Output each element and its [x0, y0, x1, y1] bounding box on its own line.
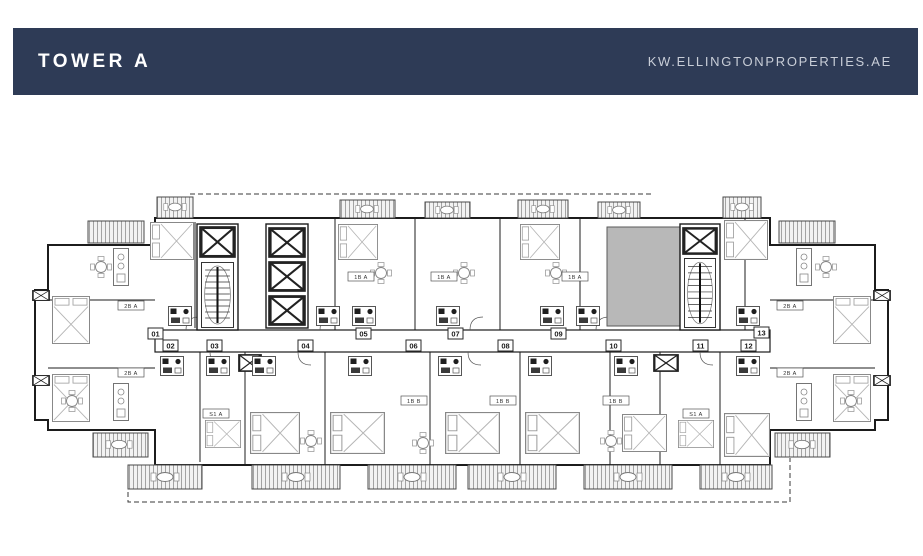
elevator-shaft	[270, 263, 304, 291]
balcony-table	[436, 206, 458, 214]
bed	[834, 296, 871, 343]
balcony-table	[498, 473, 526, 482]
unit-type-tag: 1B B	[490, 396, 516, 405]
bed	[678, 420, 713, 447]
bathroom-pod	[253, 357, 276, 376]
balcony-table	[789, 440, 815, 448]
type-tag-label: 2B A	[124, 371, 138, 377]
balcony-table	[164, 203, 186, 211]
bathroom-pod	[437, 307, 460, 326]
unit-number-tag: 12	[741, 340, 756, 351]
type-tag-label: 2B A	[783, 304, 797, 310]
facade-planter	[33, 291, 49, 301]
service-core-block	[607, 227, 680, 326]
unit-type-tag: 1B B	[401, 396, 427, 405]
unit-tag-label: 12	[744, 342, 752, 351]
unit-type-tag: 2B A	[777, 301, 803, 310]
type-tag-label: 1B A	[437, 275, 451, 281]
balcony-table	[722, 473, 750, 482]
type-tag-label: 1B B	[496, 399, 510, 405]
facade-planter	[874, 291, 890, 301]
elevator-shaft	[270, 297, 304, 325]
facade-planter	[33, 376, 49, 386]
unit-type-tag: 1B A	[562, 272, 588, 281]
unit-type-tag: 2B A	[118, 301, 144, 310]
unit-number-tag: 11	[693, 340, 708, 351]
unit-tag-label: 04	[301, 342, 310, 351]
kitchen-island	[797, 384, 812, 421]
balcony-table	[608, 206, 630, 214]
balcony	[779, 221, 835, 243]
bathroom-pod	[737, 307, 760, 326]
bed	[53, 296, 90, 343]
elevator-shaft	[270, 229, 304, 257]
unit-number-tag: 07	[448, 328, 463, 339]
stairs	[202, 263, 234, 328]
bed	[526, 413, 580, 454]
bathroom-pod	[529, 357, 552, 376]
bed	[520, 224, 559, 259]
balcony-table	[282, 473, 310, 482]
kitchen-island	[114, 384, 129, 421]
unit-tag-label: 11	[697, 342, 705, 351]
unit-number-tag: 05	[356, 328, 371, 339]
bed	[725, 414, 770, 457]
balcony-table	[356, 205, 378, 213]
unit-tag-label: 09	[554, 330, 562, 339]
bathroom-pod	[353, 307, 376, 326]
unit-tag-label: 08	[501, 342, 509, 351]
bathroom-pod	[207, 357, 230, 376]
bed	[623, 415, 667, 452]
balcony-table	[106, 440, 132, 448]
balcony-table	[398, 473, 426, 482]
unit-number-tag: 01	[148, 328, 163, 339]
shaft-void	[684, 228, 716, 253]
balcony-table	[614, 473, 642, 482]
bathroom-pod	[577, 307, 600, 326]
balcony-table	[151, 473, 179, 482]
unit-number-tag: 02	[163, 340, 178, 351]
unit-number-tag: 08	[498, 340, 513, 351]
balcony-table	[532, 205, 554, 213]
unit-number-tag: 06	[406, 340, 421, 351]
type-tag-label: S1 A	[689, 412, 703, 418]
unit-number-tag: 03	[207, 340, 222, 351]
unit-number-tag: 09	[551, 328, 566, 339]
balcony-table	[731, 203, 753, 211]
kitchen-island	[797, 249, 812, 286]
bathroom-pod	[737, 357, 760, 376]
unit-number-tag: 13	[754, 327, 769, 338]
type-tag-label: 2B A	[124, 304, 138, 310]
unit-type-tag: S1 A	[203, 409, 229, 418]
unit-number-tag: 10	[606, 340, 621, 351]
unit-type-tag: 1B B	[603, 396, 629, 405]
bathroom-pod	[541, 307, 564, 326]
shaft-void	[201, 228, 234, 257]
unit-type-tag: 2B A	[777, 368, 803, 377]
unit-type-tag: 1B A	[348, 272, 374, 281]
unit-tag-label: 05	[359, 330, 367, 339]
bathroom-pod	[349, 357, 372, 376]
type-tag-label: 1B A	[354, 275, 368, 281]
floor-plan: 01 02 03 04 05 06 07 08 09 10 11 12 13 2…	[0, 0, 923, 556]
unit-tag-label: 10	[609, 342, 617, 351]
facade-planter	[874, 376, 890, 386]
type-tag-label: S1 A	[209, 412, 223, 418]
bed	[205, 420, 240, 447]
bed	[331, 413, 385, 454]
kitchen-island	[114, 249, 129, 286]
duct-shaft	[654, 355, 677, 371]
stairs	[685, 259, 716, 328]
bathroom-pod	[317, 307, 340, 326]
unit-tag-label: 02	[166, 342, 174, 351]
bathroom-pod	[169, 307, 192, 326]
bed	[338, 224, 377, 259]
bathroom-pod	[161, 357, 184, 376]
bed	[725, 221, 768, 260]
type-tag-label: 1B B	[407, 399, 421, 405]
bathroom-pod	[439, 357, 462, 376]
unit-type-tag: S1 A	[683, 409, 709, 418]
unit-tag-label: 06	[409, 342, 417, 351]
bed	[151, 223, 194, 260]
bathroom-pod	[615, 357, 638, 376]
unit-tag-label: 01	[151, 330, 159, 339]
bed	[251, 413, 300, 454]
unit-tag-label: 07	[451, 330, 459, 339]
unit-tag-label: 13	[757, 329, 765, 338]
type-tag-label: 1B B	[609, 399, 623, 405]
unit-type-tag: 1B A	[431, 272, 457, 281]
type-tag-label: 1B A	[568, 275, 582, 281]
unit-tag-label: 03	[210, 342, 218, 351]
bed	[446, 413, 500, 454]
unit-number-tag: 04	[298, 340, 313, 351]
balcony	[88, 221, 144, 243]
unit-type-tag: 2B A	[118, 368, 144, 377]
type-tag-label: 2B A	[783, 371, 797, 377]
